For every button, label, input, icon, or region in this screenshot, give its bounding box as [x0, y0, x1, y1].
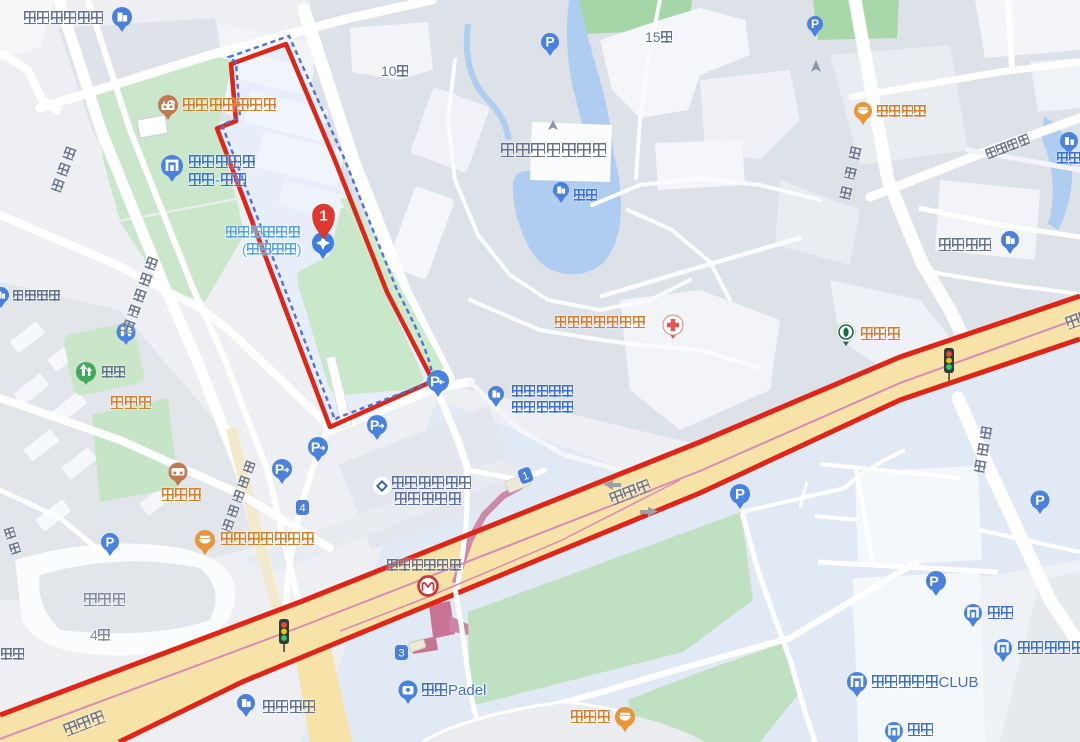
- svg-text:P: P: [430, 374, 440, 391]
- svg-text:P: P: [811, 17, 819, 31]
- svg-text:P: P: [275, 461, 284, 477]
- svg-text:3: 3: [398, 648, 404, 660]
- svg-text:P: P: [106, 535, 115, 550]
- svg-text:1: 1: [319, 208, 327, 225]
- svg-text:P: P: [311, 439, 320, 455]
- svg-text:P: P: [370, 417, 379, 433]
- svg-text:P: P: [929, 573, 938, 589]
- svg-text:P: P: [1035, 493, 1045, 509]
- svg-text:P: P: [735, 486, 745, 503]
- svg-text:P: P: [545, 35, 554, 50]
- svg-text:4: 4: [299, 503, 305, 515]
